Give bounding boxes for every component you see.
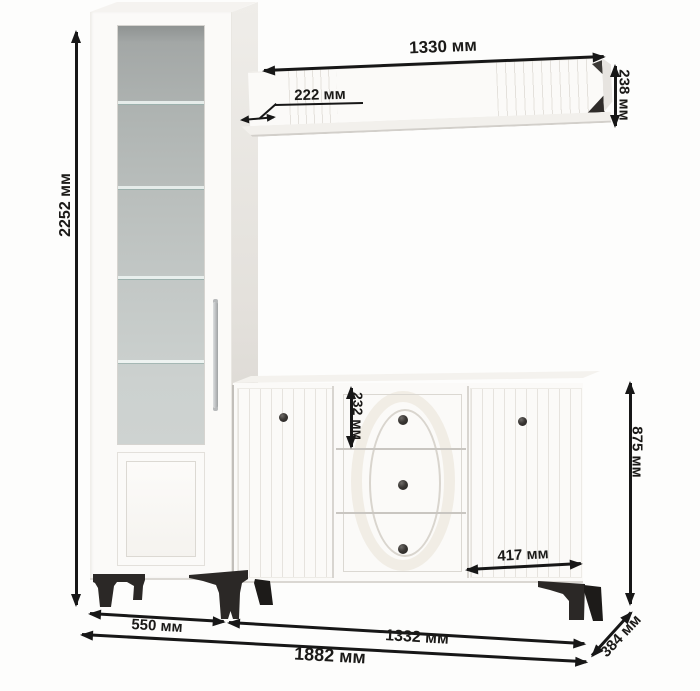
glass-shelf [118,360,204,364]
drawer-knob-bottom [398,544,408,554]
dim-label-door-width: 417 мм [497,545,549,565]
shelf-grooves-right [496,58,590,118]
cabinet-top-surface [90,2,258,12]
cabinet-lower-door-panel [126,461,196,557]
sideboard-side-panel [583,371,601,582]
glass-door [117,25,205,445]
right-door-knob [518,417,527,426]
left-door-knob [279,413,288,422]
glass-shelf [118,276,204,280]
cabinet-sideboard-seam [232,385,234,579]
dim-label-shelf-height: 238 мм [616,69,633,120]
glass-shelf [118,186,204,190]
drawer-gap [336,512,466,514]
dim-arrow-total-height [75,32,78,605]
door-handle [213,302,218,408]
drawer-knob-top [398,415,408,425]
dim-label-cabinet-width: 550 мм [131,616,183,636]
dim-label-total-width: 1882 мм [294,644,367,669]
glass-shelf [118,101,204,105]
dim-label-shelf-width: 1330 мм [409,36,477,59]
door-gap-left [332,386,334,578]
dim-label-total-height: 2252 мм [57,173,75,237]
cabinet-left-leg [93,574,145,608]
dim-arrow-sideboard-height [629,383,632,604]
furniture-dimension-diagram: 2252 мм 1330 мм 222 мм 238 мм 232 мм 417… [0,0,700,691]
dim-label-sideboard-height: 875 мм [629,426,646,477]
sideboard-right-leg [538,581,586,621]
dim-label-drawer-height: 232 мм [350,392,366,440]
dim-label-shelf-overhang: 222 мм [294,86,346,104]
door-gap-right [467,386,469,578]
sideboard-right-back-leg [584,585,606,621]
center-leg-bracket [189,569,249,619]
dim-label-sideboard-width: 1332 мм [385,627,450,649]
drawer-knob-middle [398,480,408,490]
